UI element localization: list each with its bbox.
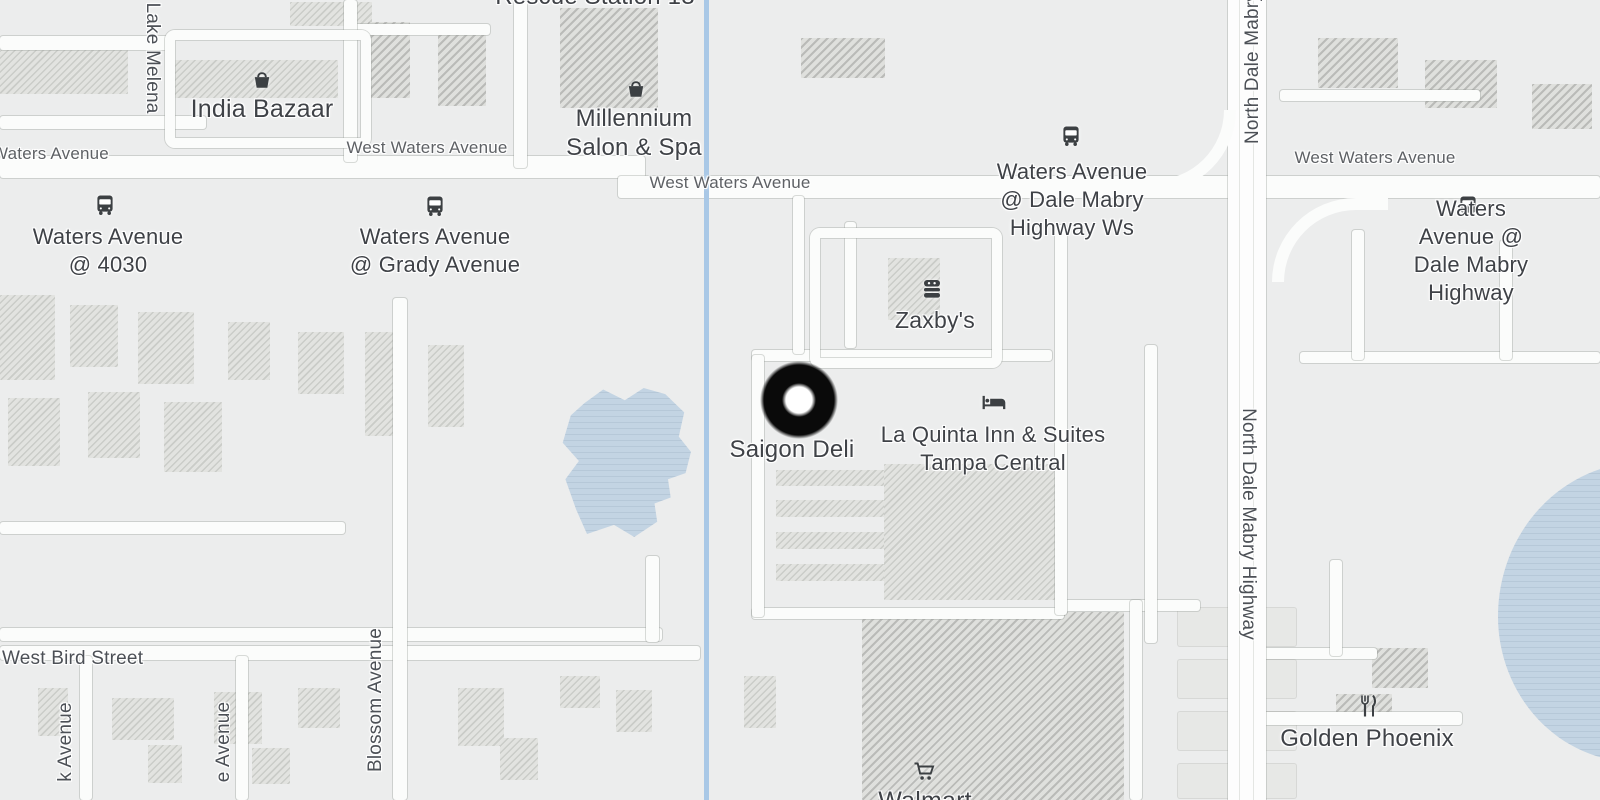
building [112,698,174,740]
label-lake-melena: Lake Melena [138,3,166,114]
plaza-ring-road [165,30,371,148]
building [70,305,118,367]
poi-label-golden-phoenix[interactable]: Golden Phoenix [1280,725,1454,753]
building [862,612,1124,800]
building [290,2,372,26]
road [1280,90,1480,101]
building [458,688,504,746]
building [88,392,140,458]
bus-icon [1062,126,1081,147]
bus-icon [426,196,445,217]
burger-icon [920,277,944,299]
building [1318,38,1398,88]
road [350,24,490,35]
building [744,676,776,728]
bed-icon [981,394,1006,412]
pond [560,385,695,537]
street-label-e-avenue: e Avenue [210,702,238,783]
street-label-west-bird-street: West Bird Street [2,645,143,673]
road [1300,352,1600,363]
road [752,608,1064,619]
building [560,676,600,708]
building [428,345,464,427]
road [1130,600,1142,800]
building [8,398,60,466]
road [646,556,659,642]
poi-label-millennium-salon[interactable]: Millennium Salon & Spa [566,104,702,162]
road [80,656,92,800]
building [801,38,885,78]
building [884,464,1062,600]
highway-ramp [1272,198,1388,282]
poi-label-zaxbys[interactable]: Zaxby's [895,306,975,334]
street-label-k-avenue: k Avenue [52,702,80,781]
road [1055,225,1067,615]
road [793,196,804,354]
shopping-cart-icon [914,761,937,781]
building [298,332,344,394]
road [1145,345,1157,643]
fork-knife-icon [1359,695,1378,718]
road-label-west-waters-avenue-mid: West Waters Avenue [649,169,810,197]
shopping-basket-icon [626,78,647,98]
building [438,28,486,106]
road [0,628,662,641]
building [616,690,652,732]
zaxbys-ring-road [810,228,1002,368]
road [514,0,527,168]
map-canvas[interactable]: Rescue Station 13 India Bazaar Millenniu… [0,0,1600,800]
road-label-west-waters-avenue-left: Waters Avenue [0,140,109,168]
road [1255,648,1377,659]
building [252,748,290,784]
building [0,295,55,380]
transit-stop-label-waters-dale-mabry[interactable]: Waters Avenue @ Dale Mabry Highway [1407,195,1536,307]
poi-label-rescue-station[interactable]: Rescue Station 13 [495,0,695,11]
poi-label-la-quinta[interactable]: La Quinta Inn & Suites Tampa Central [881,421,1106,477]
creek [704,0,709,800]
street-label-blossom-avenue: Blossom Avenue [362,628,390,772]
building [298,688,340,728]
building [1532,84,1592,129]
poi-label-india-bazaar[interactable]: India Bazaar [191,95,334,123]
building [164,402,222,472]
poi-label-saigon-deli[interactable]: Saigon Deli [730,436,855,464]
transit-stop-label-waters-grady[interactable]: Waters Avenue @ Grady Avenue [350,223,520,279]
building [148,745,182,783]
road-label-west-waters-avenue-center: West Waters Avenue [346,134,507,162]
building [1372,648,1428,688]
road-label-west-waters-avenue-right: West Waters Avenue [1294,144,1455,172]
street-label-north-dale-mabry-top: North Dale Mabry [1239,0,1267,144]
road [1330,560,1342,656]
road [0,522,345,534]
transit-stop-label-waters-dale-mabry-ws[interactable]: Waters Avenue @ Dale Mabry Highway Ws [997,158,1148,242]
street-label-north-dale-mabry: North Dale Mabry Highway [1234,408,1262,640]
road [393,298,407,800]
building [228,322,270,380]
poi-label-walmart[interactable]: Walmart [878,787,972,800]
building [138,312,194,384]
transit-stop-label-waters-4030[interactable]: Waters Avenue @ 4030 [33,223,184,279]
location-marker-saigon-deli[interactable] [760,361,838,439]
bus-icon [96,195,115,216]
building [0,50,128,94]
building [500,738,538,780]
lake-right [1498,462,1600,762]
shopping-basket-icon [252,69,273,89]
